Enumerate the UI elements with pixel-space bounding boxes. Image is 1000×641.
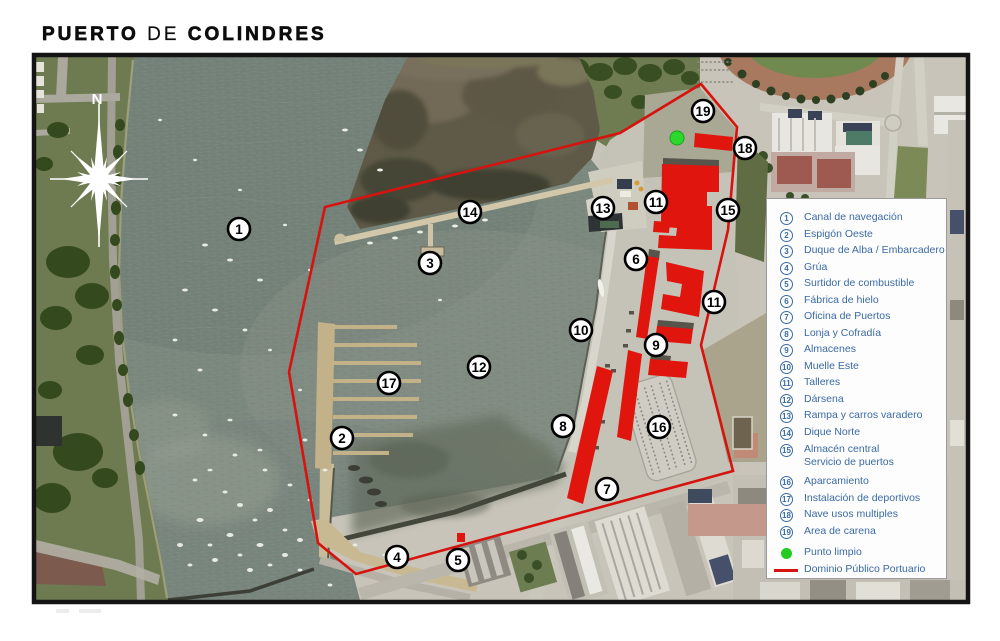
svg-text:1: 1 xyxy=(235,222,243,237)
svg-text:4: 4 xyxy=(393,550,401,565)
svg-text:3: 3 xyxy=(426,256,434,271)
svg-text:16: 16 xyxy=(651,420,667,435)
svg-text:14: 14 xyxy=(462,205,478,220)
svg-text:18: 18 xyxy=(737,141,753,156)
svg-text:11: 11 xyxy=(649,195,664,210)
svg-text:17: 17 xyxy=(381,376,396,391)
svg-text:13: 13 xyxy=(595,201,611,216)
svg-text:15: 15 xyxy=(720,203,736,218)
svg-text:7: 7 xyxy=(603,482,611,497)
svg-text:12: 12 xyxy=(471,360,486,375)
svg-text:2: 2 xyxy=(338,431,346,446)
svg-text:N: N xyxy=(92,91,103,108)
svg-text:6: 6 xyxy=(632,252,640,267)
svg-text:9: 9 xyxy=(652,338,660,353)
svg-text:11: 11 xyxy=(707,295,722,310)
svg-text:10: 10 xyxy=(573,323,588,338)
svg-text:5: 5 xyxy=(454,553,462,568)
svg-text:19: 19 xyxy=(695,104,710,119)
svg-text:8: 8 xyxy=(559,419,567,434)
